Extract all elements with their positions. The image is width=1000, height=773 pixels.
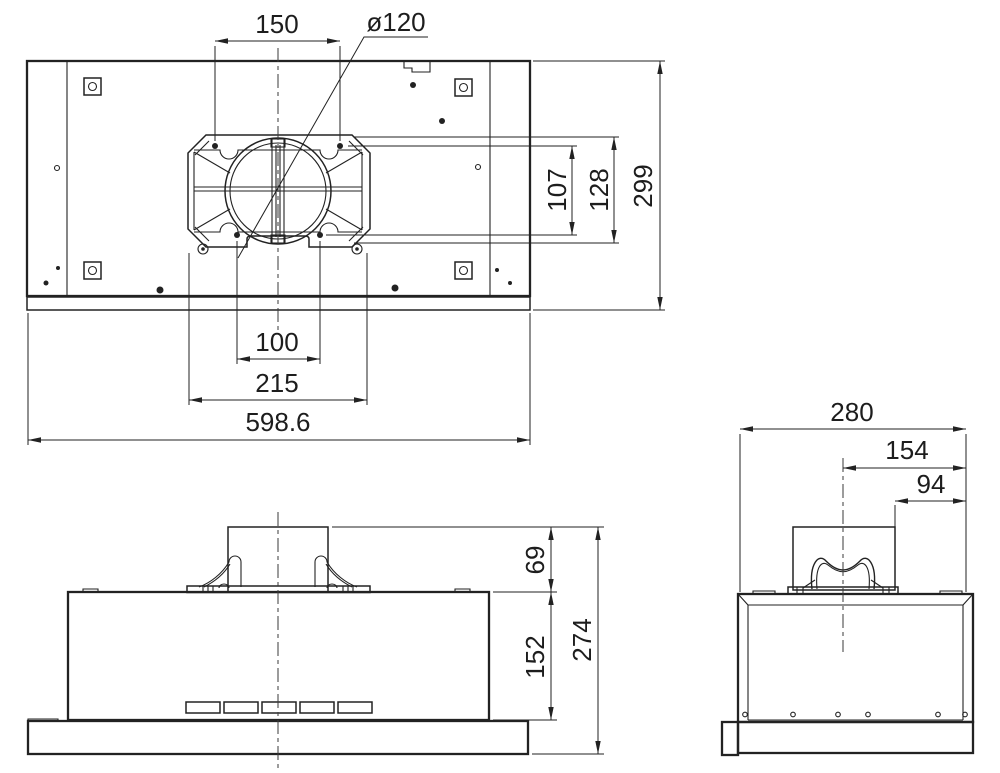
dim-100-label: 100 xyxy=(255,327,298,357)
top-view: 150 ø120 107 128 299 100 215 xyxy=(27,7,665,445)
dim-107-label: 107 xyxy=(542,168,572,211)
right-clamp xyxy=(315,556,357,587)
dim-152-label: 152 xyxy=(520,635,550,678)
front-louver-slots xyxy=(186,702,372,713)
side-bottom-band xyxy=(738,722,973,753)
duct-adapter-plate xyxy=(188,135,370,254)
hood-dimension-drawing: 150 ø120 107 128 299 100 215 xyxy=(0,0,1000,773)
dim-215-label: 215 xyxy=(255,368,298,398)
technical-drawing-page: 150 ø120 107 128 299 100 215 xyxy=(0,0,1000,773)
side-view: 280 154 94 xyxy=(722,397,973,755)
side-view-body xyxy=(738,594,973,722)
dim-128-label: 128 xyxy=(584,168,614,211)
dim-598-label: 598.6 xyxy=(245,407,310,437)
dim-274-label: 274 xyxy=(567,618,597,661)
side-inner-panel xyxy=(738,594,973,720)
diameter-leader-line xyxy=(238,37,428,258)
dim-299-label: 299 xyxy=(628,164,658,207)
left-clamp xyxy=(199,556,241,587)
side-panel-holes xyxy=(743,712,968,717)
front-view: 69 152 274 xyxy=(28,512,604,768)
top-view-dimensions: 150 ø120 107 128 299 100 215 xyxy=(28,7,665,445)
plate-rivets xyxy=(198,244,362,254)
side-rail-tab xyxy=(722,722,738,755)
dim-94-label: 94 xyxy=(917,469,946,499)
dim-69-label: 69 xyxy=(520,546,550,575)
top-edge-notch xyxy=(404,61,430,72)
dim-diameter-label: ø120 xyxy=(366,7,425,37)
side-duct-stub xyxy=(793,527,895,590)
dim-154-label: 154 xyxy=(885,435,928,465)
dim-280-label: 280 xyxy=(830,397,873,427)
dim-150-label: 150 xyxy=(255,9,298,39)
side-view-dimensions: 280 154 94 xyxy=(740,397,966,592)
